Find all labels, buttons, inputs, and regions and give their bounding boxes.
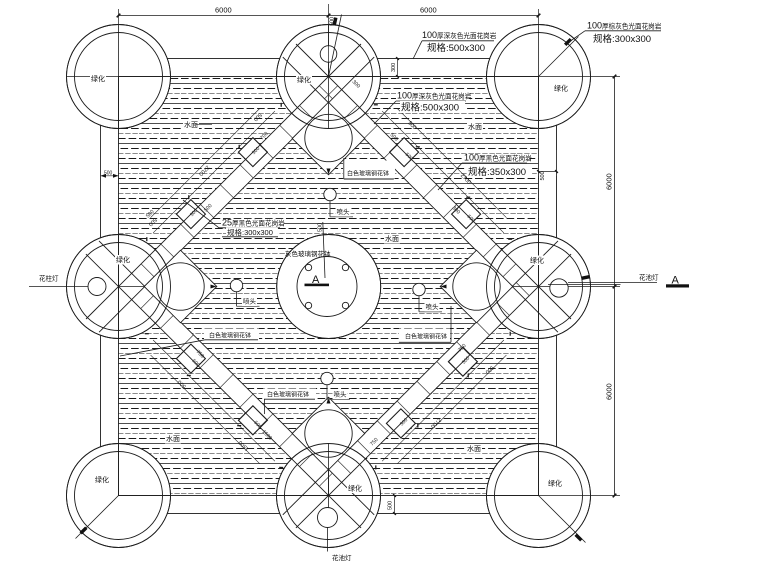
svg-text:水面: 水面	[184, 120, 198, 129]
svg-text:绿化: 绿化	[530, 256, 544, 265]
svg-text:喷头: 喷头	[426, 302, 440, 311]
svg-text:500: 500	[540, 171, 546, 180]
svg-text:花柱灯: 花柱灯	[39, 274, 59, 283]
svg-text:6000: 6000	[605, 383, 614, 400]
svg-text:白色玻璃钢花钵: 白色玻璃钢花钵	[347, 170, 389, 178]
svg-text:灰色玻璃钢花钵: 灰色玻璃钢花钵	[285, 249, 331, 258]
svg-text:6000: 6000	[605, 173, 614, 190]
svg-text:300: 300	[391, 63, 397, 72]
svg-text:500: 500	[388, 501, 394, 510]
svg-text:规格:300x300: 规格:300x300	[227, 227, 273, 237]
svg-text:500: 500	[318, 223, 324, 232]
svg-text:白色玻璃钢花钵: 白色玻璃钢花钵	[209, 332, 251, 340]
svg-text:6000: 6000	[215, 6, 232, 15]
svg-text:A: A	[312, 274, 320, 286]
svg-text:绿化: 绿化	[116, 255, 130, 264]
svg-text:规格:500x300: 规格:500x300	[427, 42, 485, 54]
svg-text:500: 500	[104, 171, 113, 177]
svg-text:绿化: 绿化	[297, 75, 311, 84]
svg-text:白色玻璃钢花钵: 白色玻璃钢花钵	[267, 391, 309, 399]
svg-text:水面: 水面	[166, 434, 180, 443]
svg-text:水面: 水面	[468, 122, 482, 131]
svg-text:绿化: 绿化	[554, 84, 568, 93]
svg-text:A: A	[672, 275, 680, 287]
svg-text:花池灯: 花池灯	[332, 553, 352, 562]
svg-text:规格:500x300: 规格:500x300	[401, 102, 459, 114]
svg-text:绿化: 绿化	[548, 479, 562, 488]
svg-text:水面: 水面	[385, 234, 399, 243]
svg-text:花池灯: 花池灯	[639, 273, 659, 282]
svg-text:500: 500	[330, 17, 336, 26]
svg-text:绿化: 绿化	[95, 475, 109, 484]
svg-text:绿化: 绿化	[348, 484, 362, 493]
svg-text:6000: 6000	[420, 6, 437, 15]
svg-text:规格:350x300: 规格:350x300	[468, 166, 526, 178]
svg-text:喷头: 喷头	[337, 207, 351, 216]
svg-text:喷头: 喷头	[334, 390, 348, 399]
svg-text:规格:300x300: 规格:300x300	[593, 33, 651, 45]
svg-text:白色玻璃钢花钵: 白色玻璃钢花钵	[405, 333, 447, 341]
svg-text:水面: 水面	[467, 444, 481, 453]
svg-text:喷头: 喷头	[243, 297, 257, 306]
svg-text:绿化: 绿化	[91, 74, 105, 83]
